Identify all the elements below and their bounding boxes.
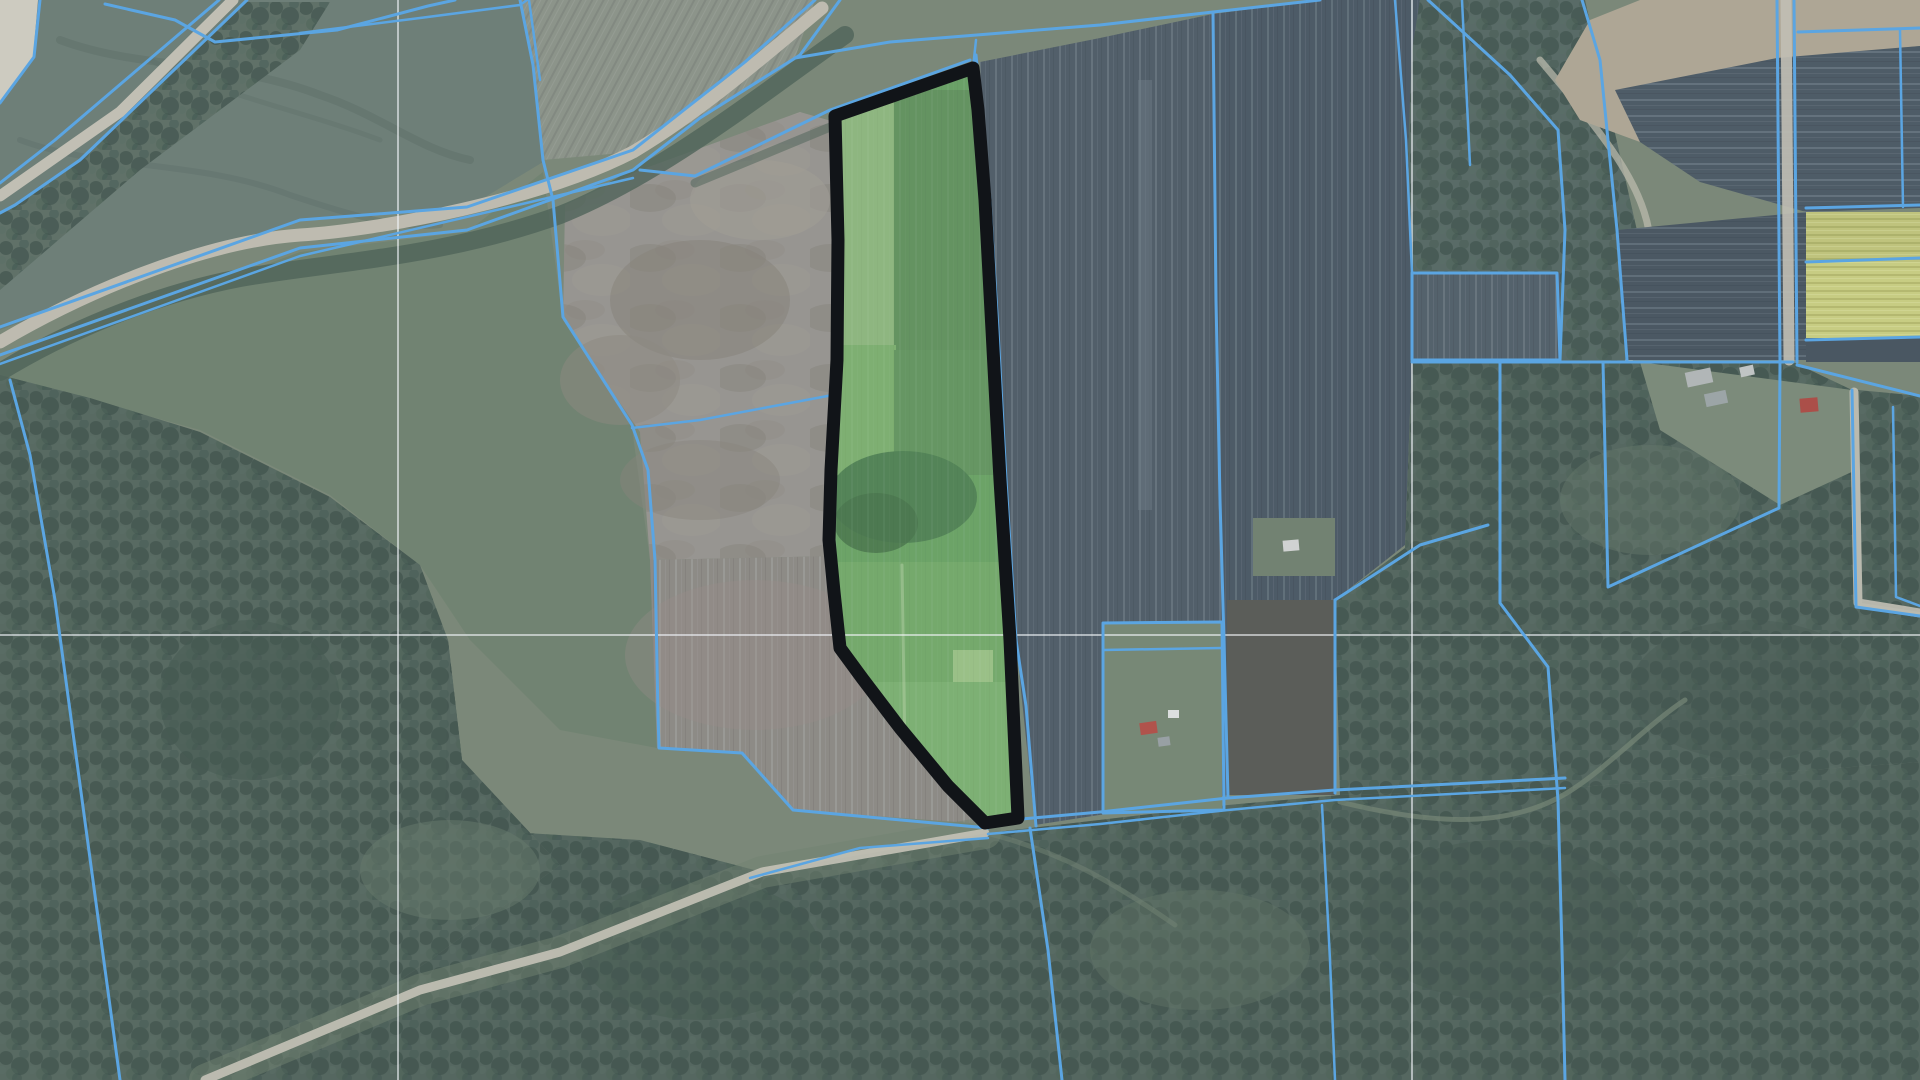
map-viewport[interactable] [0, 0, 1920, 1080]
map-canvas[interactable] [0, 0, 1920, 1080]
haze-overlay [0, 0, 1920, 1080]
